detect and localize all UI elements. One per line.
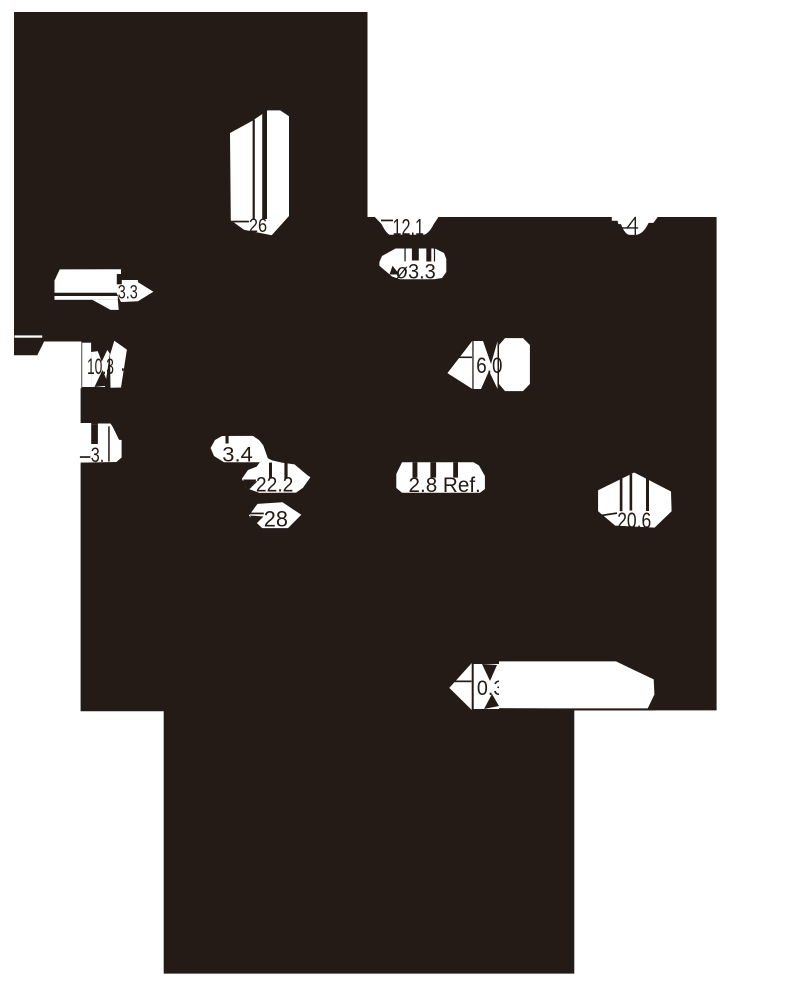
svg-text:22.2: 22.2	[256, 473, 294, 496]
svg-text:10.3: 10.3	[87, 354, 114, 379]
svg-text:6.0: 6.0	[476, 353, 502, 378]
svg-text:2.8 Ref.: 2.8 Ref.	[409, 474, 481, 497]
svg-text:26: 26	[249, 216, 267, 237]
svg-text:3.3: 3.3	[118, 282, 138, 303]
svg-text:3.4: 3.4	[222, 444, 253, 467]
svg-text:3.: 3.	[91, 444, 105, 467]
svg-text:ø3.3: ø3.3	[396, 261, 436, 284]
svg-text:20.6: 20.6	[617, 508, 651, 533]
svg-text:12.1: 12.1	[393, 214, 425, 240]
svg-text:28: 28	[264, 507, 288, 532]
